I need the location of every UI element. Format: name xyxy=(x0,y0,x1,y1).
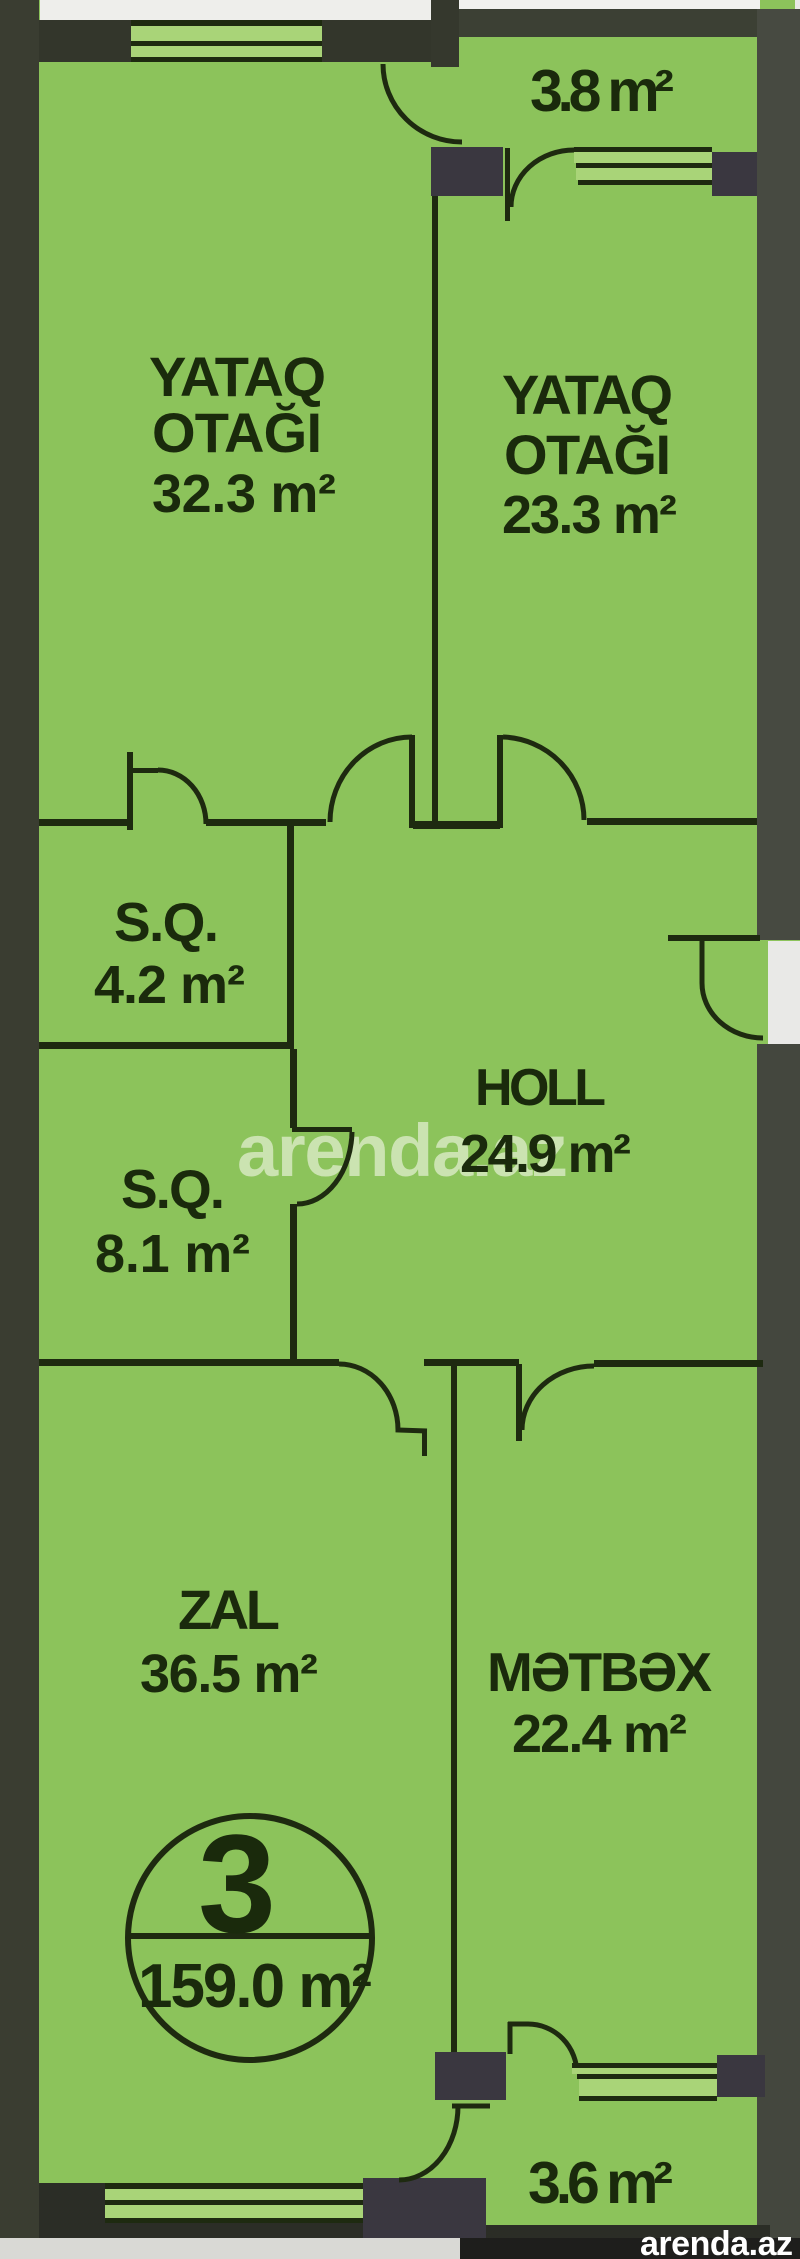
svg-text:3: 3 xyxy=(198,1805,276,1962)
svg-text:32.3 m²: 32.3 m² xyxy=(152,464,336,524)
svg-text:24.9 m²: 24.9 m² xyxy=(460,1124,631,1184)
svg-text:36.5 m²: 36.5 m² xyxy=(140,1644,318,1704)
svg-text:S.Q.: S.Q. xyxy=(121,1158,225,1220)
svg-text:23.3 m²: 23.3 m² xyxy=(502,485,677,545)
svg-text:22.4 m²: 22.4 m² xyxy=(512,1704,687,1764)
svg-text:MƏTBƏX: MƏTBƏX xyxy=(487,1641,712,1703)
svg-text:arenda.az: arenda.az xyxy=(640,2225,793,2259)
svg-text:HOLL: HOLL xyxy=(475,1059,606,1117)
svg-text:4.2 m²: 4.2 m² xyxy=(94,955,245,1015)
svg-text:8.1 m²: 8.1 m² xyxy=(95,1224,250,1284)
svg-text:YATAQ: YATAQ xyxy=(502,363,673,426)
svg-text:3.8 m²: 3.8 m² xyxy=(530,58,674,124)
svg-text:OTAĞI: OTAĞI xyxy=(504,423,671,486)
svg-text:159.0 m²: 159.0 m² xyxy=(138,1952,372,2021)
svg-text:ZAL: ZAL xyxy=(178,1578,280,1641)
svg-text:3.6 m²: 3.6 m² xyxy=(528,2150,673,2216)
svg-text:YATAQ: YATAQ xyxy=(149,345,326,408)
svg-text:S.Q.: S.Q. xyxy=(114,891,219,953)
svg-text:OTAĞI: OTAĞI xyxy=(152,401,322,464)
